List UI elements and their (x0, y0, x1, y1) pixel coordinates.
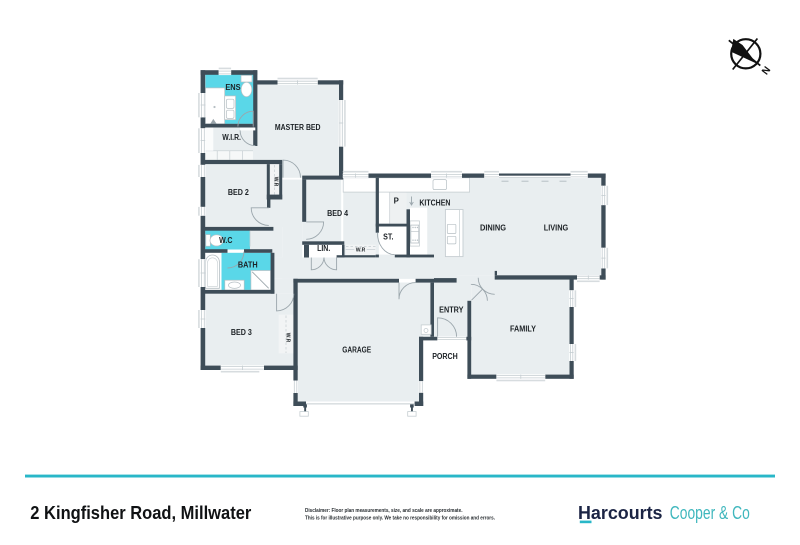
svg-text:Harcourts: Harcourts (578, 503, 663, 523)
svg-text:KITCHEN: KITCHEN (419, 198, 450, 207)
svg-text:BATH: BATH (238, 261, 258, 270)
svg-text:BED 4: BED 4 (327, 209, 349, 218)
svg-text:DINING: DINING (480, 224, 506, 233)
svg-text:LIVING: LIVING (544, 224, 569, 233)
svg-text:W.R: W.R (284, 333, 290, 343)
svg-text:P: P (394, 196, 399, 205)
svg-text:LIN.: LIN. (317, 244, 330, 253)
svg-text:Disclaimer: Floor plan measure: Disclaimer: Floor plan measurements, siz… (305, 508, 463, 514)
svg-text:W.C: W.C (219, 236, 233, 245)
svg-text:BED 2: BED 2 (228, 188, 250, 197)
svg-text:W.I.R.: W.I.R. (222, 133, 241, 142)
svg-text:W.R: W.R (356, 247, 366, 253)
svg-text:W.R: W.R (273, 177, 279, 187)
svg-text:BED 3: BED 3 (231, 328, 253, 337)
svg-text:FAMILY: FAMILY (510, 324, 537, 333)
svg-text:ENS: ENS (225, 83, 240, 92)
svg-text:GARAGE: GARAGE (342, 346, 371, 355)
svg-text:MASTER BED: MASTER BED (275, 123, 321, 132)
svg-text:Cooper & Co: Cooper & Co (670, 503, 750, 523)
svg-text:ENTRY: ENTRY (439, 306, 464, 315)
svg-text:ST.: ST. (383, 233, 393, 242)
svg-text:2 Kingfisher Road, Millwater: 2 Kingfisher Road, Millwater (30, 502, 251, 523)
svg-text:PORCH: PORCH (432, 352, 458, 361)
svg-text:This is for illustrative purpo: This is for illustrative purpose only. W… (305, 516, 495, 522)
